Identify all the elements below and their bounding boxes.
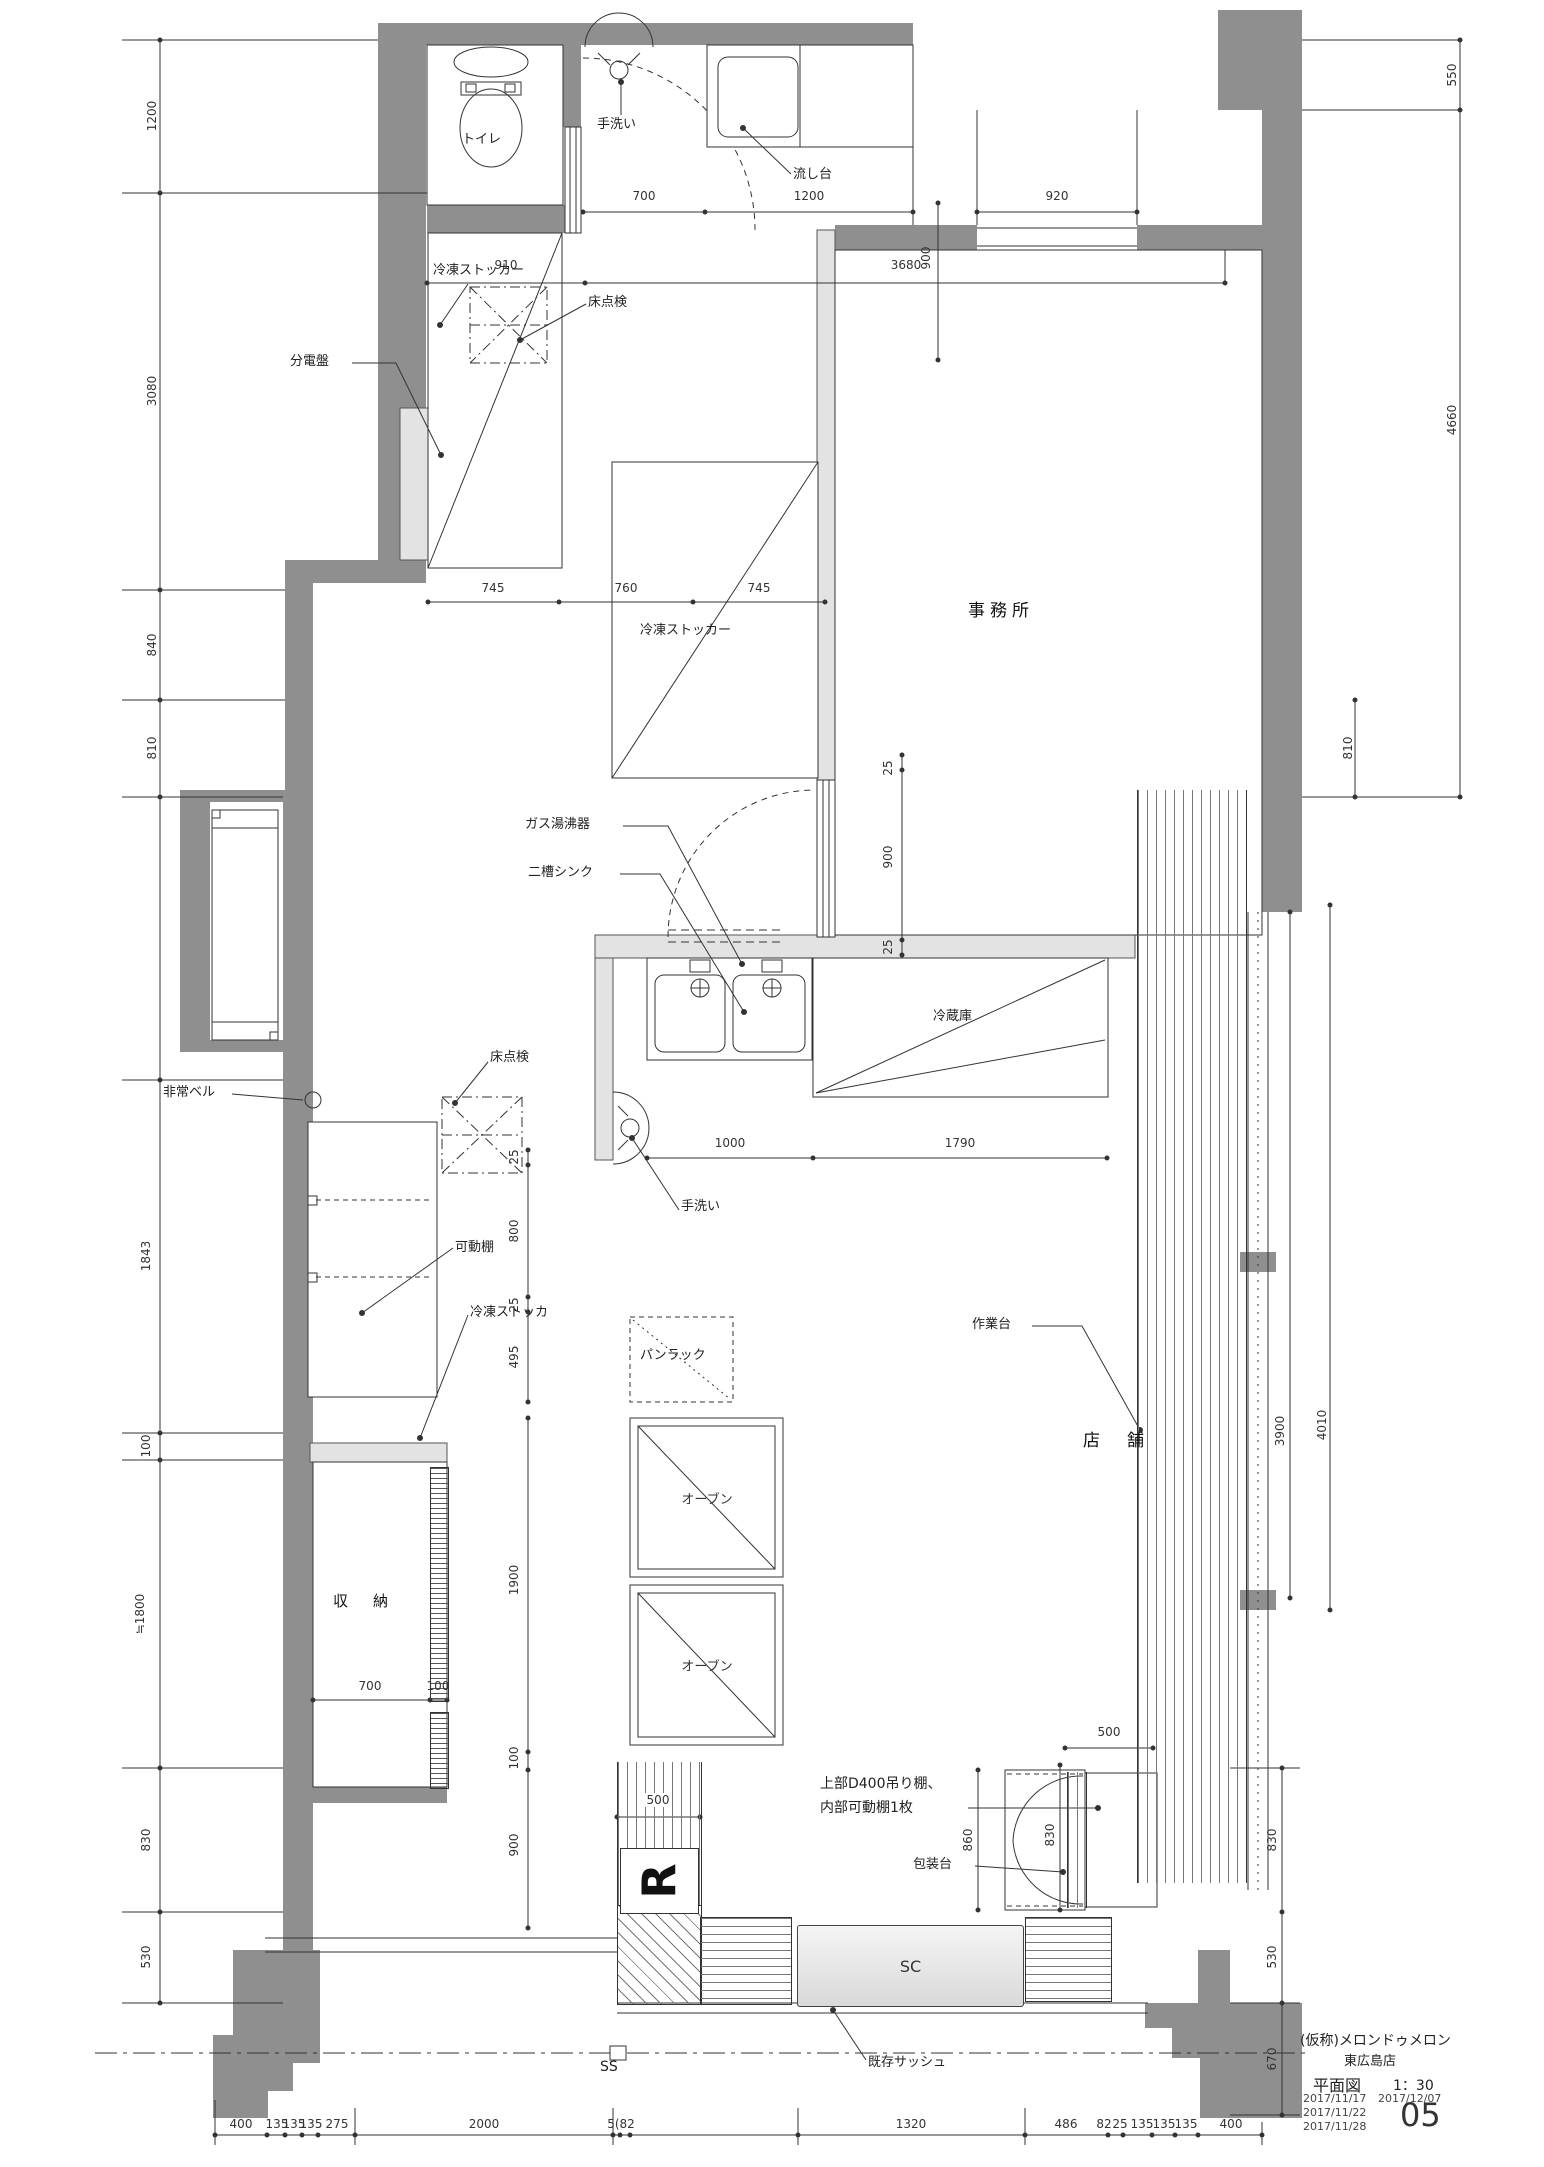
label-floor-hatch-2: 床点検 (490, 1051, 529, 1065)
sc-label: SC (900, 1957, 921, 1976)
dim-550-right: 550 (1445, 64, 1459, 87)
label-gas-heater: ガス湯沸器 (525, 818, 590, 832)
floor-plan-page: R SC トイレ 事務所 店 舗 収 納 手洗い 流し台 分電盤 床点検 冷凍ス… (0, 0, 1544, 2167)
label-hand-wash-2: 手洗い (681, 1200, 720, 1214)
dim-1900: 1900 (507, 1565, 521, 1596)
dim-bottom-135d: 135 (1131, 2117, 1154, 2131)
dim-100-storage: 100 (427, 1679, 450, 1693)
dim-bottom-82: 82 (1096, 2117, 1111, 2131)
title-date-3: 2017/11/28 (1303, 2120, 1366, 2133)
dim-495: 495 (507, 1346, 521, 1369)
dim-500-entrance: 500 (645, 1793, 672, 1807)
insulation-strip-lower (430, 1712, 449, 1789)
dim-25-shelf-bottom: 25 (507, 1297, 521, 1312)
dim-700-top: 700 (633, 189, 656, 203)
dim-right-3900: 3900 (1273, 1416, 1287, 1447)
label-hand-wash-top: 手洗い (597, 118, 636, 132)
packing-table-hatch (1067, 1772, 1087, 1908)
dim-25-door-top: 25 (881, 760, 895, 775)
dim-left-100: 100 (139, 1435, 153, 1458)
r-mark: R (632, 1863, 686, 1898)
dim-right-530: 530 (1265, 1946, 1279, 1969)
title-store: 東広島店 (1344, 2050, 1396, 2069)
dim-760: 760 (615, 581, 638, 595)
dim-900-door: 900 (881, 846, 895, 869)
floorplan-drawing (0, 0, 1544, 2167)
dim-left-1843: 1843 (139, 1241, 153, 1272)
dim-bottom-135f: 135 (1175, 2117, 1198, 2131)
dim-right-830: 830 (1265, 1829, 1279, 1852)
dim-900-mid: 900 (507, 1834, 521, 1857)
dim-1790: 1790 (945, 1136, 976, 1150)
dim-left-1200: 1200 (145, 101, 159, 132)
dim-bottom-400a: 400 (230, 2117, 253, 2131)
dim-right-670: 670 (1265, 2048, 1279, 2071)
dim-left-1800: ≒1800 (133, 1594, 147, 1635)
dim-3680: 3680 (891, 258, 922, 272)
dim-830-packing: 830 (1043, 1824, 1057, 1847)
label-dist-board: 分電盤 (290, 355, 329, 369)
label-packing-table: 包装台 (913, 1858, 952, 1872)
room-label-shop: 店 舗 (1083, 1432, 1149, 1451)
label-movable-shelf: 可動棚 (455, 1241, 494, 1255)
dim-bottom-275: 275 (326, 2117, 349, 2131)
title-project: (仮称)メロンドゥメロン (1300, 2030, 1451, 2050)
label-shelf-note-2: 内部可動棚1枚 (820, 1801, 913, 1816)
dim-bottom-135c: 135 (300, 2117, 323, 2131)
dim-right-4010: 4010 (1315, 1410, 1329, 1441)
label-fridge: 冷蔵庫 (933, 1010, 972, 1024)
dim-left-530: 530 (139, 1946, 153, 1969)
dim-left-840: 840 (145, 634, 159, 657)
dim-910: 910 (495, 258, 518, 272)
entrance-r-mark-box: R (620, 1848, 699, 1914)
dim-920-top: 920 (1046, 189, 1069, 203)
label-sink-unit: 流し台 (793, 168, 832, 182)
label-work-table: 作業台 (972, 1318, 1011, 1332)
fixtures (95, 13, 1310, 2060)
dim-500-packing: 500 (1098, 1725, 1121, 1739)
dim-bottom-486: 486 (1055, 2117, 1078, 2131)
work-table-hatch (1137, 790, 1247, 1883)
dim-bottom-2000: 2000 (469, 2117, 500, 2131)
room-label-storage: 収 納 (333, 1593, 393, 1610)
insulation-strip-upper (430, 1467, 449, 1702)
label-freezer-2: 冷凍ストッカー (640, 624, 731, 638)
title-date-1: 2017/11/17 (1303, 2092, 1366, 2105)
label-double-sink: 二槽シンク (528, 866, 593, 880)
dim-25-door-bottom: 25 (881, 939, 895, 954)
room-label-toilet: トイレ (462, 133, 501, 147)
dim-1200-top: 1200 (794, 189, 825, 203)
label-existing-sash: 既存サッシュ (868, 2056, 946, 2070)
sheet-number: 05 (1400, 2096, 1441, 2134)
dim-800: 800 (507, 1220, 521, 1243)
entrance-corner-hatch (617, 1905, 702, 2005)
label-oven-2: オーブン (681, 1656, 732, 1675)
dim-745-b: 745 (748, 581, 771, 595)
dim-25-shelf-top: 25 (507, 1149, 521, 1164)
label-ss: SS (600, 2060, 618, 2075)
label-bread-rack: パンラック (640, 1349, 706, 1363)
dim-860: 860 (961, 1829, 975, 1852)
dim-right-4660: 4660 (1445, 405, 1459, 436)
dim-1000: 1000 (715, 1136, 746, 1150)
label-floor-hatch-1: 床点検 (588, 296, 627, 310)
step-strip-left (700, 1917, 792, 2005)
dim-left-810: 810 (145, 737, 159, 760)
dim-bottom-5082: 5(82 (607, 2117, 635, 2131)
dim-100-mid: 100 (507, 1747, 521, 1770)
dim-left-830: 830 (139, 1829, 153, 1852)
dim-bottom-400b: 400 (1220, 2117, 1243, 2131)
dim-bottom-135e: 135 (1153, 2117, 1176, 2131)
dim-bottom-25: 25 (1112, 2117, 1127, 2131)
step-strip-right (1025, 1917, 1112, 2002)
dim-right-810: 810 (1341, 737, 1355, 760)
dim-900-topright: 900 (919, 247, 933, 270)
room-label-office: 事務所 (968, 602, 1034, 621)
sc-unit: SC (797, 1925, 1024, 2007)
label-oven-1: オーブン (681, 1489, 732, 1508)
dim-745-a: 745 (482, 581, 505, 595)
title-date-2: 2017/11/22 (1303, 2106, 1366, 2119)
label-emergency-bell: 非常ベル (163, 1086, 215, 1100)
label-shelf-note-1: 上部D400吊り棚、 (820, 1777, 942, 1792)
dim-bottom-1320: 1320 (896, 2117, 927, 2131)
dim-left-3080: 3080 (145, 376, 159, 407)
dim-700-storage: 700 (359, 1679, 382, 1693)
